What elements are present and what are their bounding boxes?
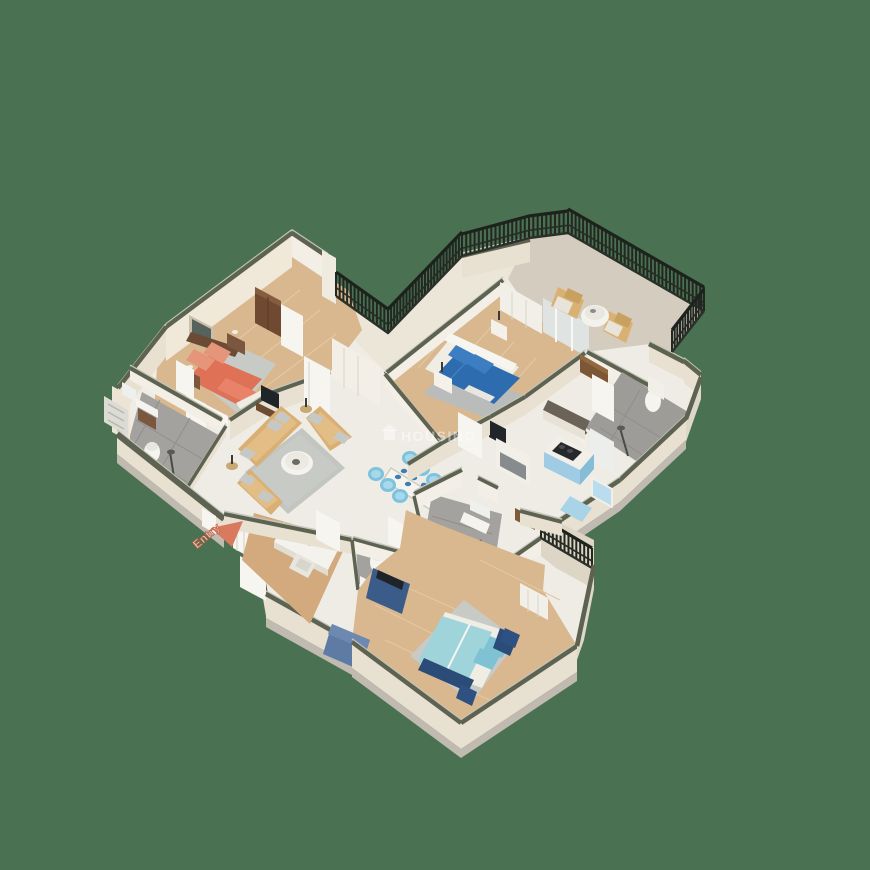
- svg-text:HOUSING: HOUSING: [401, 428, 477, 444]
